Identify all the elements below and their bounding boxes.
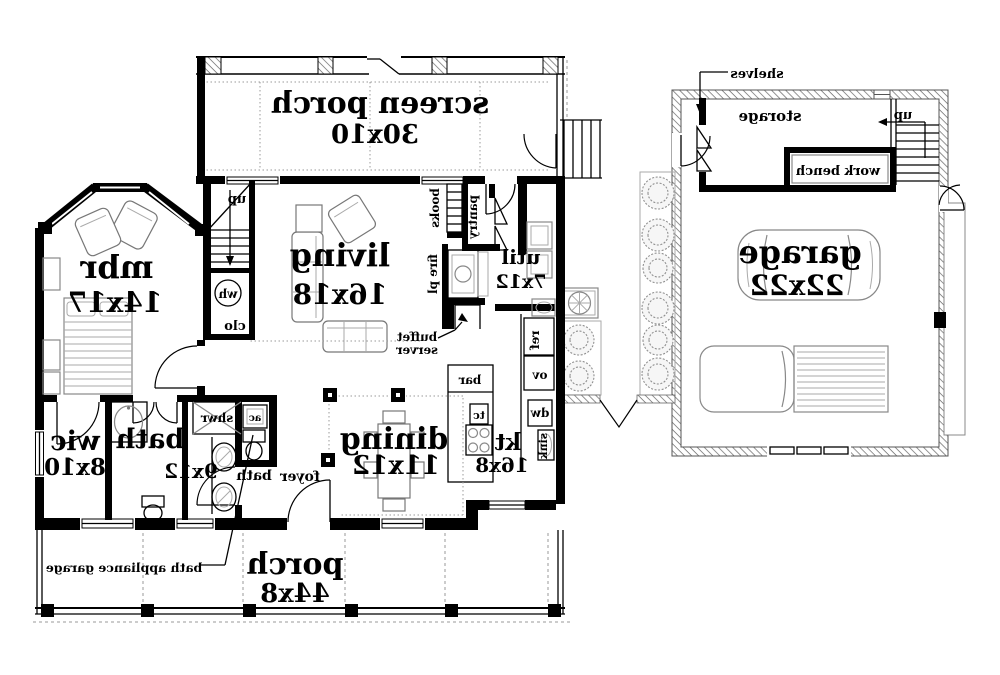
fixture-label-shelves: shelves: [730, 67, 783, 82]
dresser: [43, 340, 60, 370]
porch-post-icon: [41, 604, 54, 617]
dim-label-garage: 22x22: [750, 269, 845, 302]
porch-post-icon: [445, 604, 458, 617]
fixture-label-fire-pl: fire pl: [426, 254, 440, 294]
room-label-storage: storage: [738, 107, 801, 125]
sofa: [323, 321, 387, 352]
room-label-util: util: [501, 245, 540, 269]
room-label-kitchen: kt: [494, 429, 521, 456]
exterior-steps: [560, 120, 602, 178]
fixture-label-server: server: [396, 343, 438, 357]
stairs-up-arrow-icon: [226, 256, 234, 266]
floor-plan-drawing: screen porch 30x10 living 16x18 mbr 14x1…: [0, 0, 1000, 675]
bath-double-door-icon: [156, 402, 177, 423]
dim-label-bath: 9x12: [164, 459, 218, 483]
dim-label-living: 16x18: [293, 278, 388, 311]
screen-porch-door-icon: [524, 134, 556, 168]
porch-post-icon: [141, 604, 154, 617]
garage-door-opening: [767, 444, 851, 457]
dim-label-dining: 11x12: [352, 451, 440, 481]
bath-double-door2-icon: [133, 402, 154, 423]
fixture-label-shwr: shwr: [200, 411, 233, 425]
porch-pillar-icon: [318, 57, 333, 74]
mbr-door-icon: [155, 346, 197, 388]
garage-post: [934, 312, 946, 328]
toilet: [142, 496, 164, 521]
garage-side-stoop: [944, 203, 965, 435]
room-label-bath: bath: [115, 424, 184, 455]
walkway: [637, 395, 675, 403]
porch-post-icon: [243, 604, 256, 617]
dim-label-mbr: 14x17: [68, 286, 163, 319]
dresser: [43, 258, 60, 290]
dim-label-screen-porch: 30x10: [331, 120, 419, 150]
side-table: [296, 205, 322, 232]
range-cooktop: [466, 425, 492, 455]
fireplace: [442, 244, 488, 305]
room-label-garage: garage: [738, 233, 861, 271]
courtyard: [557, 60, 675, 427]
dim-label-porch: 44x8: [260, 579, 330, 609]
room-label-mbr: mbr: [79, 248, 153, 286]
room-label-living: living: [290, 236, 391, 274]
nightstand: [43, 372, 60, 394]
room-label-foyer: foyer: [279, 469, 319, 485]
fixture-label-ref: ref: [528, 330, 542, 350]
dim-label-kitchen: 16x8: [475, 453, 529, 477]
fixture-label-bar: bar: [458, 373, 481, 387]
bookshelf: [447, 184, 462, 232]
porch-post-icon: [345, 604, 358, 617]
fixture-label-buffet: buffet: [396, 330, 437, 344]
dim-label-util: 7x12: [496, 271, 547, 293]
fixture-label-dw: dw: [530, 406, 549, 420]
room-label-porch: porch: [246, 547, 343, 582]
dim-label-wic: 8x10: [44, 454, 106, 481]
porch-post-icon: [548, 604, 561, 617]
fixture-label-ac: ac: [249, 413, 262, 424]
fixture-label-wh: wh: [218, 287, 238, 301]
fixture-label-up-garage: up: [894, 108, 913, 123]
room-label-bath2: bath: [236, 468, 272, 484]
fixture-label-books: books: [428, 188, 442, 228]
fixture-label-clo: clo: [224, 319, 246, 334]
front-door-icon: [288, 480, 330, 522]
fixture-label-bath-appliance-garage: bath appliance garage: [46, 560, 202, 575]
ac-condenser-unit: [561, 288, 598, 318]
toilet: [243, 430, 265, 460]
pantry-bifold-door-icon: [495, 198, 507, 224]
fixture-label-up-house: up: [228, 192, 247, 207]
floor-plan-page: screen porch 30x10 living 16x18 mbr 14x1…: [0, 0, 1000, 675]
fixture-label-work-bench: work bench: [795, 164, 881, 179]
fixture-label-ov: ov: [531, 368, 547, 382]
courtyard-gate-icon: [600, 400, 637, 427]
mirrored-plan-wrapper: screen porch 30x10 living 16x18 mbr 14x1…: [0, 0, 1000, 675]
porch-pillar-icon: [205, 57, 221, 74]
porch-pillar-icon: [432, 57, 447, 74]
room-label-wic: wic: [50, 426, 101, 457]
buffet-arrow-icon: [458, 313, 468, 322]
fixture-label-tc: tc: [473, 409, 485, 422]
room-label-screen-porch: screen porch: [271, 86, 489, 121]
fixture-label-pantry: pantry: [466, 195, 480, 240]
porch-pillar-icon: [543, 57, 558, 74]
fixture-label-sink: sink: [537, 433, 550, 459]
